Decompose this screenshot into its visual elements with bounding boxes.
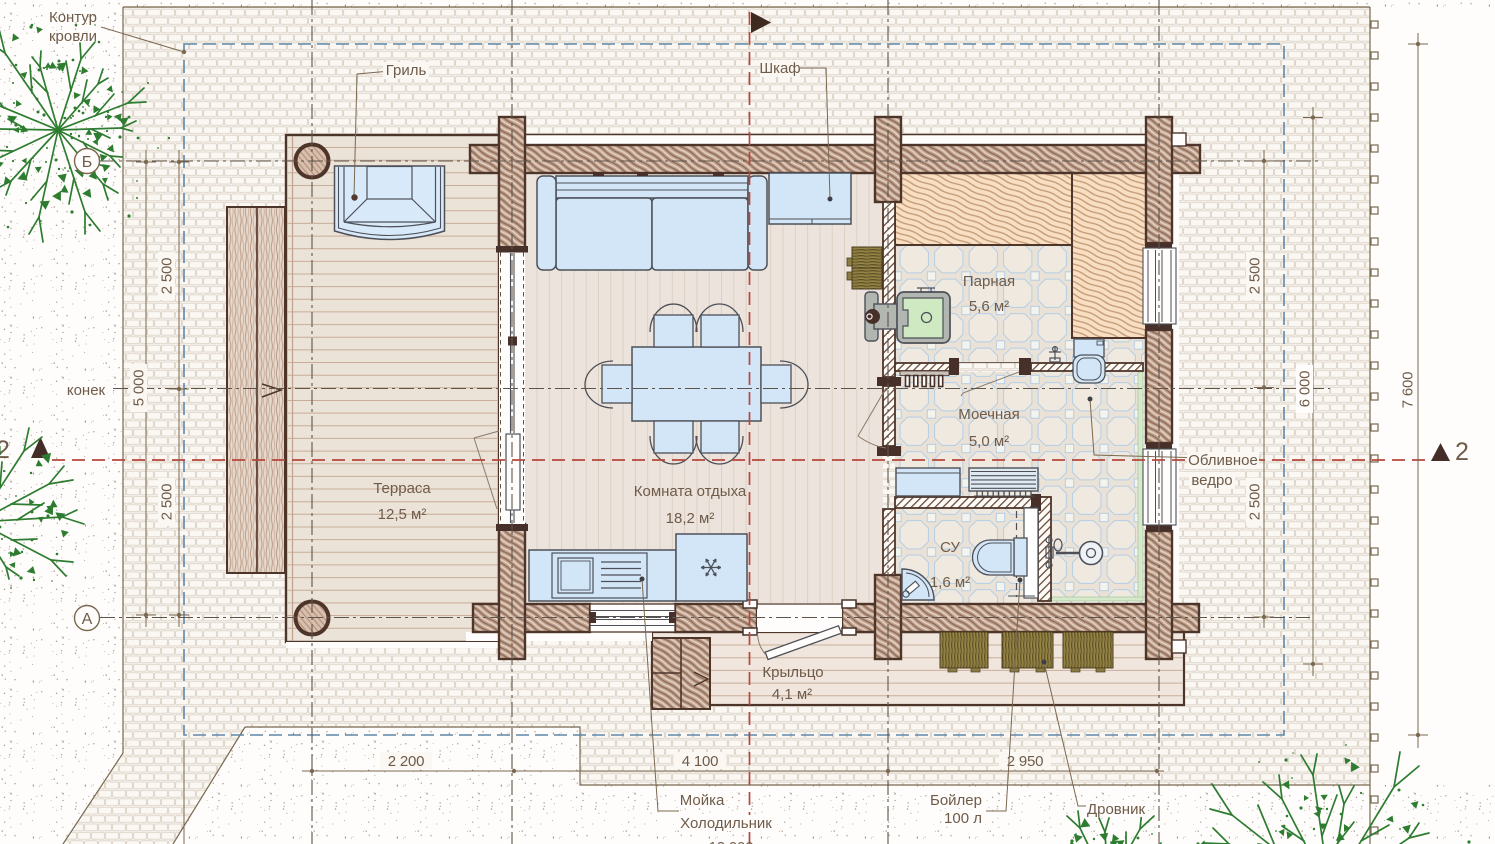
svg-text:100 л: 100 л	[944, 810, 982, 827]
svg-text:Моечная: Моечная	[958, 406, 1019, 423]
svg-text:А: А	[82, 611, 93, 628]
svg-text:2: 2	[0, 436, 10, 464]
svg-text:Комната отдыха: Комната отдыха	[634, 483, 747, 500]
svg-text:Шкаф: Шкаф	[759, 60, 800, 77]
svg-text:2 500: 2 500	[1247, 258, 1264, 295]
svg-text:18,2 м²: 18,2 м²	[666, 510, 715, 527]
svg-text:12 000: 12 000	[709, 839, 754, 844]
svg-text:Мойка: Мойка	[680, 792, 725, 809]
svg-text:1,6 м²: 1,6 м²	[930, 574, 970, 591]
svg-text:2 500: 2 500	[159, 258, 176, 295]
svg-text:Гриль: Гриль	[386, 62, 427, 79]
svg-text:2 200: 2 200	[388, 753, 425, 770]
svg-text:2: 2	[1455, 438, 1469, 466]
svg-text:Обливное: Обливное	[1188, 452, 1258, 469]
svg-text:Терраса: Терраса	[373, 480, 431, 497]
svg-text:Парная: Парная	[963, 273, 1015, 290]
svg-text:5 000: 5 000	[131, 370, 148, 407]
svg-text:2 950: 2 950	[1007, 753, 1044, 770]
svg-text:2 500: 2 500	[1247, 484, 1264, 521]
svg-text:4,1 м²: 4,1 м²	[772, 686, 812, 703]
svg-text:5,6 м²: 5,6 м²	[969, 298, 1009, 315]
svg-text:СУ: СУ	[940, 539, 960, 556]
svg-text:ведро: ведро	[1191, 472, 1232, 489]
svg-text:Крыльцо: Крыльцо	[762, 664, 823, 681]
svg-text:Холодильник: Холодильник	[680, 815, 772, 832]
svg-text:12,5 м²: 12,5 м²	[378, 506, 427, 523]
svg-text:Контур: Контур	[49, 9, 97, 26]
svg-text:Бойлер: Бойлер	[930, 792, 982, 809]
svg-text:5,0 м²: 5,0 м²	[969, 433, 1009, 450]
svg-text:6 000: 6 000	[1297, 371, 1314, 408]
svg-text:Б: Б	[82, 154, 93, 171]
svg-text:Дровник: Дровник	[1087, 801, 1145, 818]
svg-text:4 100: 4 100	[682, 753, 719, 770]
svg-text:конек: конек	[67, 382, 106, 399]
svg-text:2 500: 2 500	[159, 484, 176, 521]
svg-text:7 600: 7 600	[1400, 372, 1417, 409]
svg-text:кровли: кровли	[49, 28, 97, 45]
